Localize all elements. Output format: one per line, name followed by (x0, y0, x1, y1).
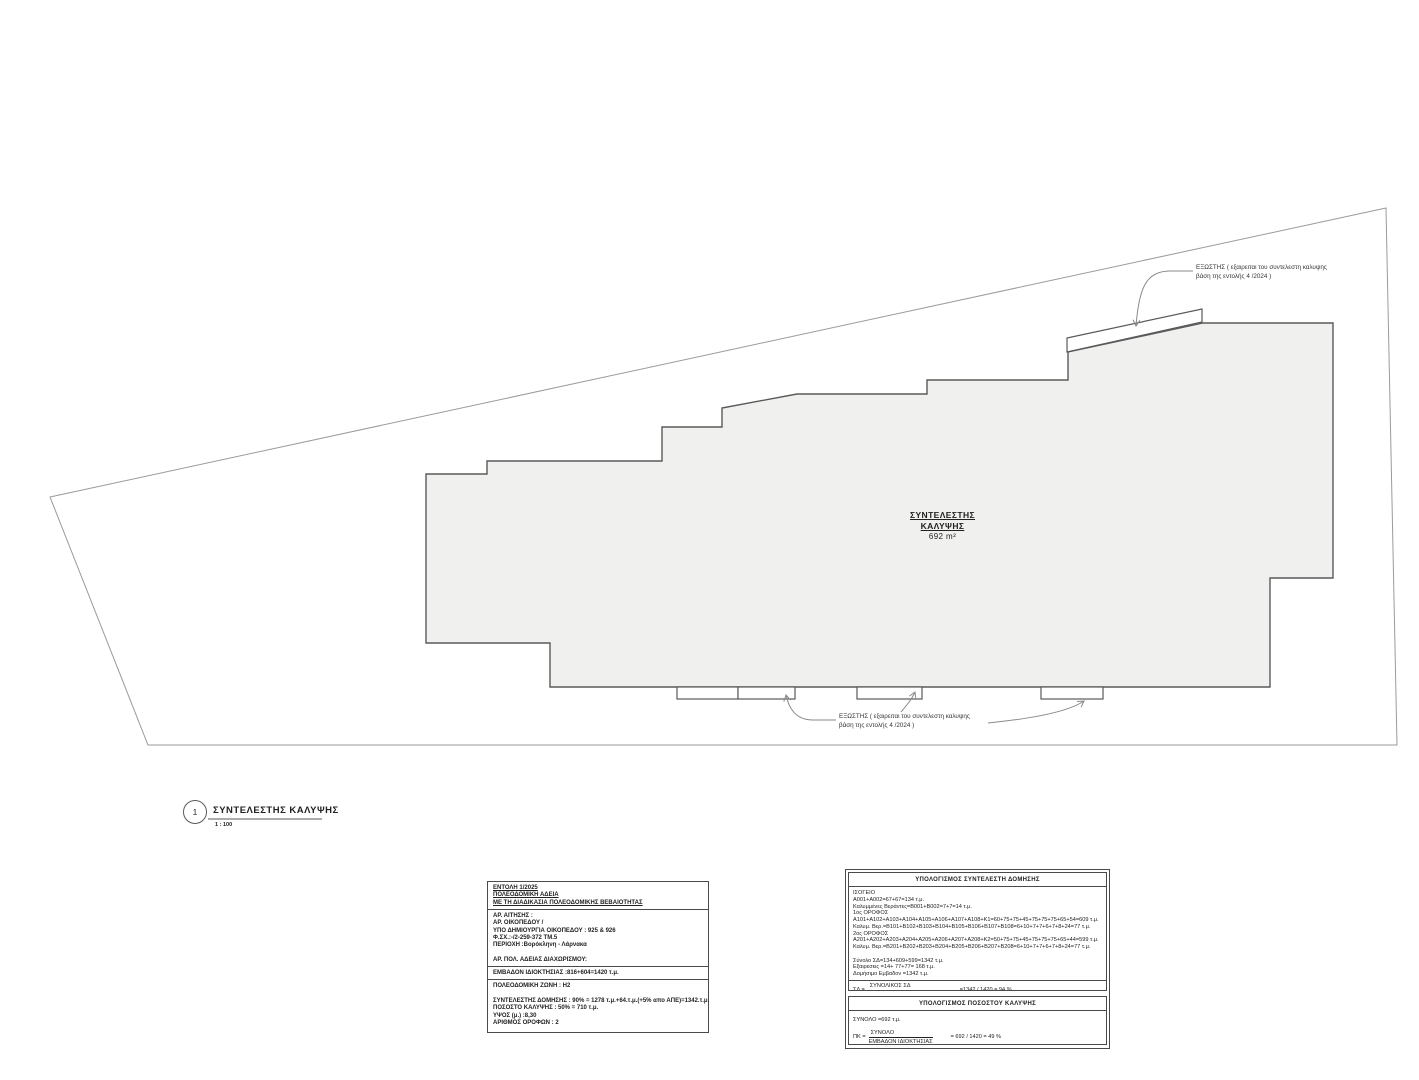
coverage-area-label: ΣΥΝΤΕΛΕΣΤΗΣ ΚΑΛΥΨΗΣ 692 m² (880, 510, 1005, 541)
permit-zone-line: ΠΟΛΕΟΔΟΜΙΚΗ ΖΩΝΗ : Η2 (493, 983, 703, 990)
pk-formula-numerator: ΣΥΝΟΛΟ (869, 1030, 933, 1038)
balcony-note-top-line2: βάση της εντολής 4 /2024 ) (1196, 273, 1327, 282)
calc-line: Α201+Α202+Α203+Α204+Α205+Α206+Α207+Α208+… (853, 937, 1102, 944)
calc-line: ΙΣΟΓΕΙΟ (853, 890, 1102, 897)
sd-formula-fraction: ΣΥΝΟΛΙΚΟΣ ΣΔ ΕΜΒΑΔΟΝ ΙΔΙΟΚΤΗΣΙΑΣ (868, 983, 932, 991)
coverage-percent-calc-box: ΥΠΟΛΟΓΙΣΜΟΣ ΠΟΣΟΣΤΟΥ ΚΑΛΥΨΗΣ ΣΥΝΟΛΟ =692… (848, 996, 1107, 1045)
permit-header-line: ΜΕ ΤΗ ΔΙΑΔΙΚΑΣΙΑ ΠΟΛΕΟΔΟΜΙΚΗΣ ΒΕΒΑΙΟΤΗΤΑ… (493, 900, 703, 907)
permit-header-line: ΕΝΤΟΛΗ 1/2025 (493, 885, 703, 892)
permit-zone-line (493, 991, 703, 998)
property-area-line: ΕΜΒΑΔΟΝ ΙΔΙΟΚΤΗΣΙΑΣ :816+604=1420 τ.μ. (493, 970, 703, 977)
pk-formula-result: = 692 / 1420 = 49 % (951, 1034, 1001, 1040)
calc-line: 2ος ΟΡΟΦΟΣ (853, 931, 1102, 938)
permit-zone-line: ΣΥΝΤΕΛΕΣΤΗΣ ΔΟΜΗΣΗΣ : 90% = 1278 τ.μ.+64… (493, 998, 703, 1005)
calc-line: Δομήσιμο Εμβαδον =1342 τ.μ. (853, 971, 1102, 978)
balcony-note-top: ΕΞΩΣΤΗΣ ( εξαιρειται του συντελεστη καλυ… (1196, 264, 1327, 281)
leader-bottom-note-3 (988, 701, 1084, 723)
permit-application-line (493, 950, 703, 957)
permit-header-line: ΠΟΛΕΟΔΟΜΙΚΗ ΑΔΕΙΑ (493, 892, 703, 899)
sd-formula: ΣΔ = ΣΥΝΟΛΙΚΟΣ ΣΔ ΕΜΒΑΔΟΝ ΙΔΙΟΚΤΗΣΙΑΣ =1… (849, 980, 1106, 991)
coverage-label-line2: ΚΑΛΥΨΗΣ (880, 521, 1005, 532)
pk-formula: ΠΚ = ΣΥΝΟΛΟ ΕΜΒΑΔΟΝ ΙΔΙΟΚΤΗΣΙΑΣ = 692 / … (849, 1026, 1106, 1045)
plan-linework (0, 0, 1419, 1080)
calc-line: Καλυμμένες Βεράντες=Β001+Β002=7+7=14 τ.μ… (853, 904, 1102, 911)
calculations-panel: ΥΠΟΛΟΓΙΣΜΟΣ ΣΥΝΤΕΛΕΣΤΗ ΔΟΜΗΣΗΣ ΙΣΟΓΕΙΟΑ0… (845, 869, 1110, 1049)
permit-application-section: ΑΡ. ΑΙΤΗΣΗΣ :ΑΡ. ΟΙΚΟΠΕΔΟΥ /ΥΠΟ ΔΗΜΙΟΥΡΓ… (488, 909, 708, 966)
building-factor-calc-title: ΥΠΟΛΟΓΙΣΜΟΣ ΣΥΝΤΕΛΕΣΤΗ ΔΟΜΗΣΗΣ (849, 873, 1106, 887)
permit-application-line: ΑΡ. ΠΟΛ. ΑΔΕΙΑΣ ΔΙΑΧΩΡΙΣΜΟΥ: (493, 957, 703, 964)
permit-area-section: ΕΜΒΑΔΟΝ ΙΔΙΟΚΤΗΣΙΑΣ :816+604=1420 τ.μ. (488, 966, 708, 979)
coverage-total-line-wrap: ΣΥΝΟΛΟ =692 τ.μ. (849, 1011, 1106, 1026)
calc-line: Καλυμ. Βερ.=Β201+Β202+Β203+Β204+Β205+Β20… (853, 944, 1102, 951)
calc-line: Σύνολο ΣΔ=134+609+599=1342 τ.μ. (853, 958, 1102, 965)
drawing-sheet: ΣΥΝΤΕΛΕΣΤΗΣ ΚΑΛΥΨΗΣ 692 m² ΕΞΩΣΤΗΣ ( εξα… (0, 0, 1419, 1080)
balcony-note-top-line1: ΕΞΩΣΤΗΣ ( εξαιρειται του συντελεστη καλυ… (1196, 264, 1327, 273)
balcony-bottom-4 (1041, 687, 1103, 699)
calc-line: 1ος ΟΡΟΦΟΣ (853, 910, 1102, 917)
coverage-percent-calc-title: ΥΠΟΛΟΓΙΣΜΟΣ ΠΟΣΟΣΤΟΥ ΚΑΛΥΨΗΣ (849, 997, 1106, 1011)
sd-formula-numerator: ΣΥΝΟΛΙΚΟΣ ΣΔ (868, 983, 932, 991)
calc-line: Α001+Α002=67+67=134 τ.μ. (853, 897, 1102, 904)
coverage-area-value: 692 m² (880, 532, 1005, 541)
drawing-scale: 1 : 100 (215, 822, 232, 828)
coverage-label-line1: ΣΥΝΤΕΛΕΣΤΗΣ (880, 510, 1005, 521)
permit-header-section: ΕΝΤΟΛΗ 1/2025ΠΟΛΕΟΔΟΜΙΚΗ ΑΔΕΙΑΜΕ ΤΗ ΔΙΑΔ… (488, 882, 708, 909)
building-factor-calc-box: ΥΠΟΛΟΓΙΣΜΟΣ ΣΥΝΤΕΛΕΣΤΗ ΔΟΜΗΣΗΣ ΙΣΟΓΕΙΟΑ0… (848, 872, 1107, 991)
balcony-note-bottom-line2: βάση της εντολής 4 /2024 ) (839, 722, 970, 731)
building-footprint (426, 323, 1333, 687)
balcony-note-bottom: ΕΞΩΣΤΗΣ ( εξαιρειται του συντελεστη καλυ… (839, 713, 970, 730)
permit-info-box: ΕΝΤΟΛΗ 1/2025ΠΟΛΕΟΔΟΜΙΚΗ ΑΔΕΙΑΜΕ ΤΗ ΔΙΑΔ… (487, 881, 709, 1033)
permit-zone-line: ΥΨΟΣ (μ.) :8,30 (493, 1013, 703, 1020)
pk-formula-denominator: ΕΜΒΑΔΟΝ ΙΔΙΟΚΤΗΣΙΑΣ (869, 1038, 933, 1045)
detail-number: 1 (184, 801, 207, 824)
calc-line (853, 951, 1102, 958)
pk-formula-lhs: ΠΚ = (853, 1034, 866, 1040)
calc-line: Καλυμ. Βερ.=Β101+Β102+Β103+Β104+Β105+Β10… (853, 924, 1102, 931)
building-factor-calc-lines: ΙΣΟΓΕΙΟΑ001+Α002=67+67=134 τ.μ.Καλυμμένε… (849, 887, 1106, 980)
balcony-note-bottom-line1: ΕΞΩΣΤΗΣ ( εξαιρειται του συντελεστη καλυ… (839, 713, 970, 722)
coverage-total-line: ΣΥΝΟΛΟ =692 τ.μ. (853, 1017, 1102, 1024)
permit-application-line: ΠΕΡΙΟΧΗ :Βορόκληνη - Λάρνακα (493, 942, 703, 949)
permit-zone-line: ΑΡΙΘΜΟΣ ΟΡΟΦΩΝ : 2 (493, 1020, 703, 1027)
drawing-title: ΣΥΝΤΕΛΕΣΤΗΣ ΚΑΛΥΨΗΣ (213, 805, 339, 816)
calc-line: Α101+Α102+Α103+Α104+Α105+Α106+Α107+Α108+… (853, 917, 1102, 924)
pk-formula-fraction: ΣΥΝΟΛΟ ΕΜΒΑΔΟΝ ΙΔΙΟΚΤΗΣΙΑΣ (869, 1030, 933, 1045)
permit-application-line: Φ.ΣΧ.:-/2-259-372 ΤΜ.5 (493, 935, 703, 942)
permit-zone-line: ΠΟΣΟΣΤΟ ΚΑΛΥΨΗΣ : 50% = 710 τ.μ. (493, 1005, 703, 1012)
permit-zone-section: ΠΟΛΕΟΔΟΜΙΚΗ ΖΩΝΗ : Η2 ΣΥΝΤΕΛΕΣΤΗΣ ΔΟΜΗΣΗ… (488, 979, 708, 1029)
permit-application-line: ΥΠΟ ΔΗΜΙΟΥΡΓΙΑ ΟΙΚΟΠΕΔΟΥ : 925 & 926 (493, 928, 703, 935)
permit-application-line: ΑΡ. ΟΙΚΟΠΕΔΟΥ / (493, 920, 703, 927)
permit-application-line: ΑΡ. ΑΙΤΗΣΗΣ : (493, 913, 703, 920)
balcony-bottom-1 (677, 687, 738, 699)
